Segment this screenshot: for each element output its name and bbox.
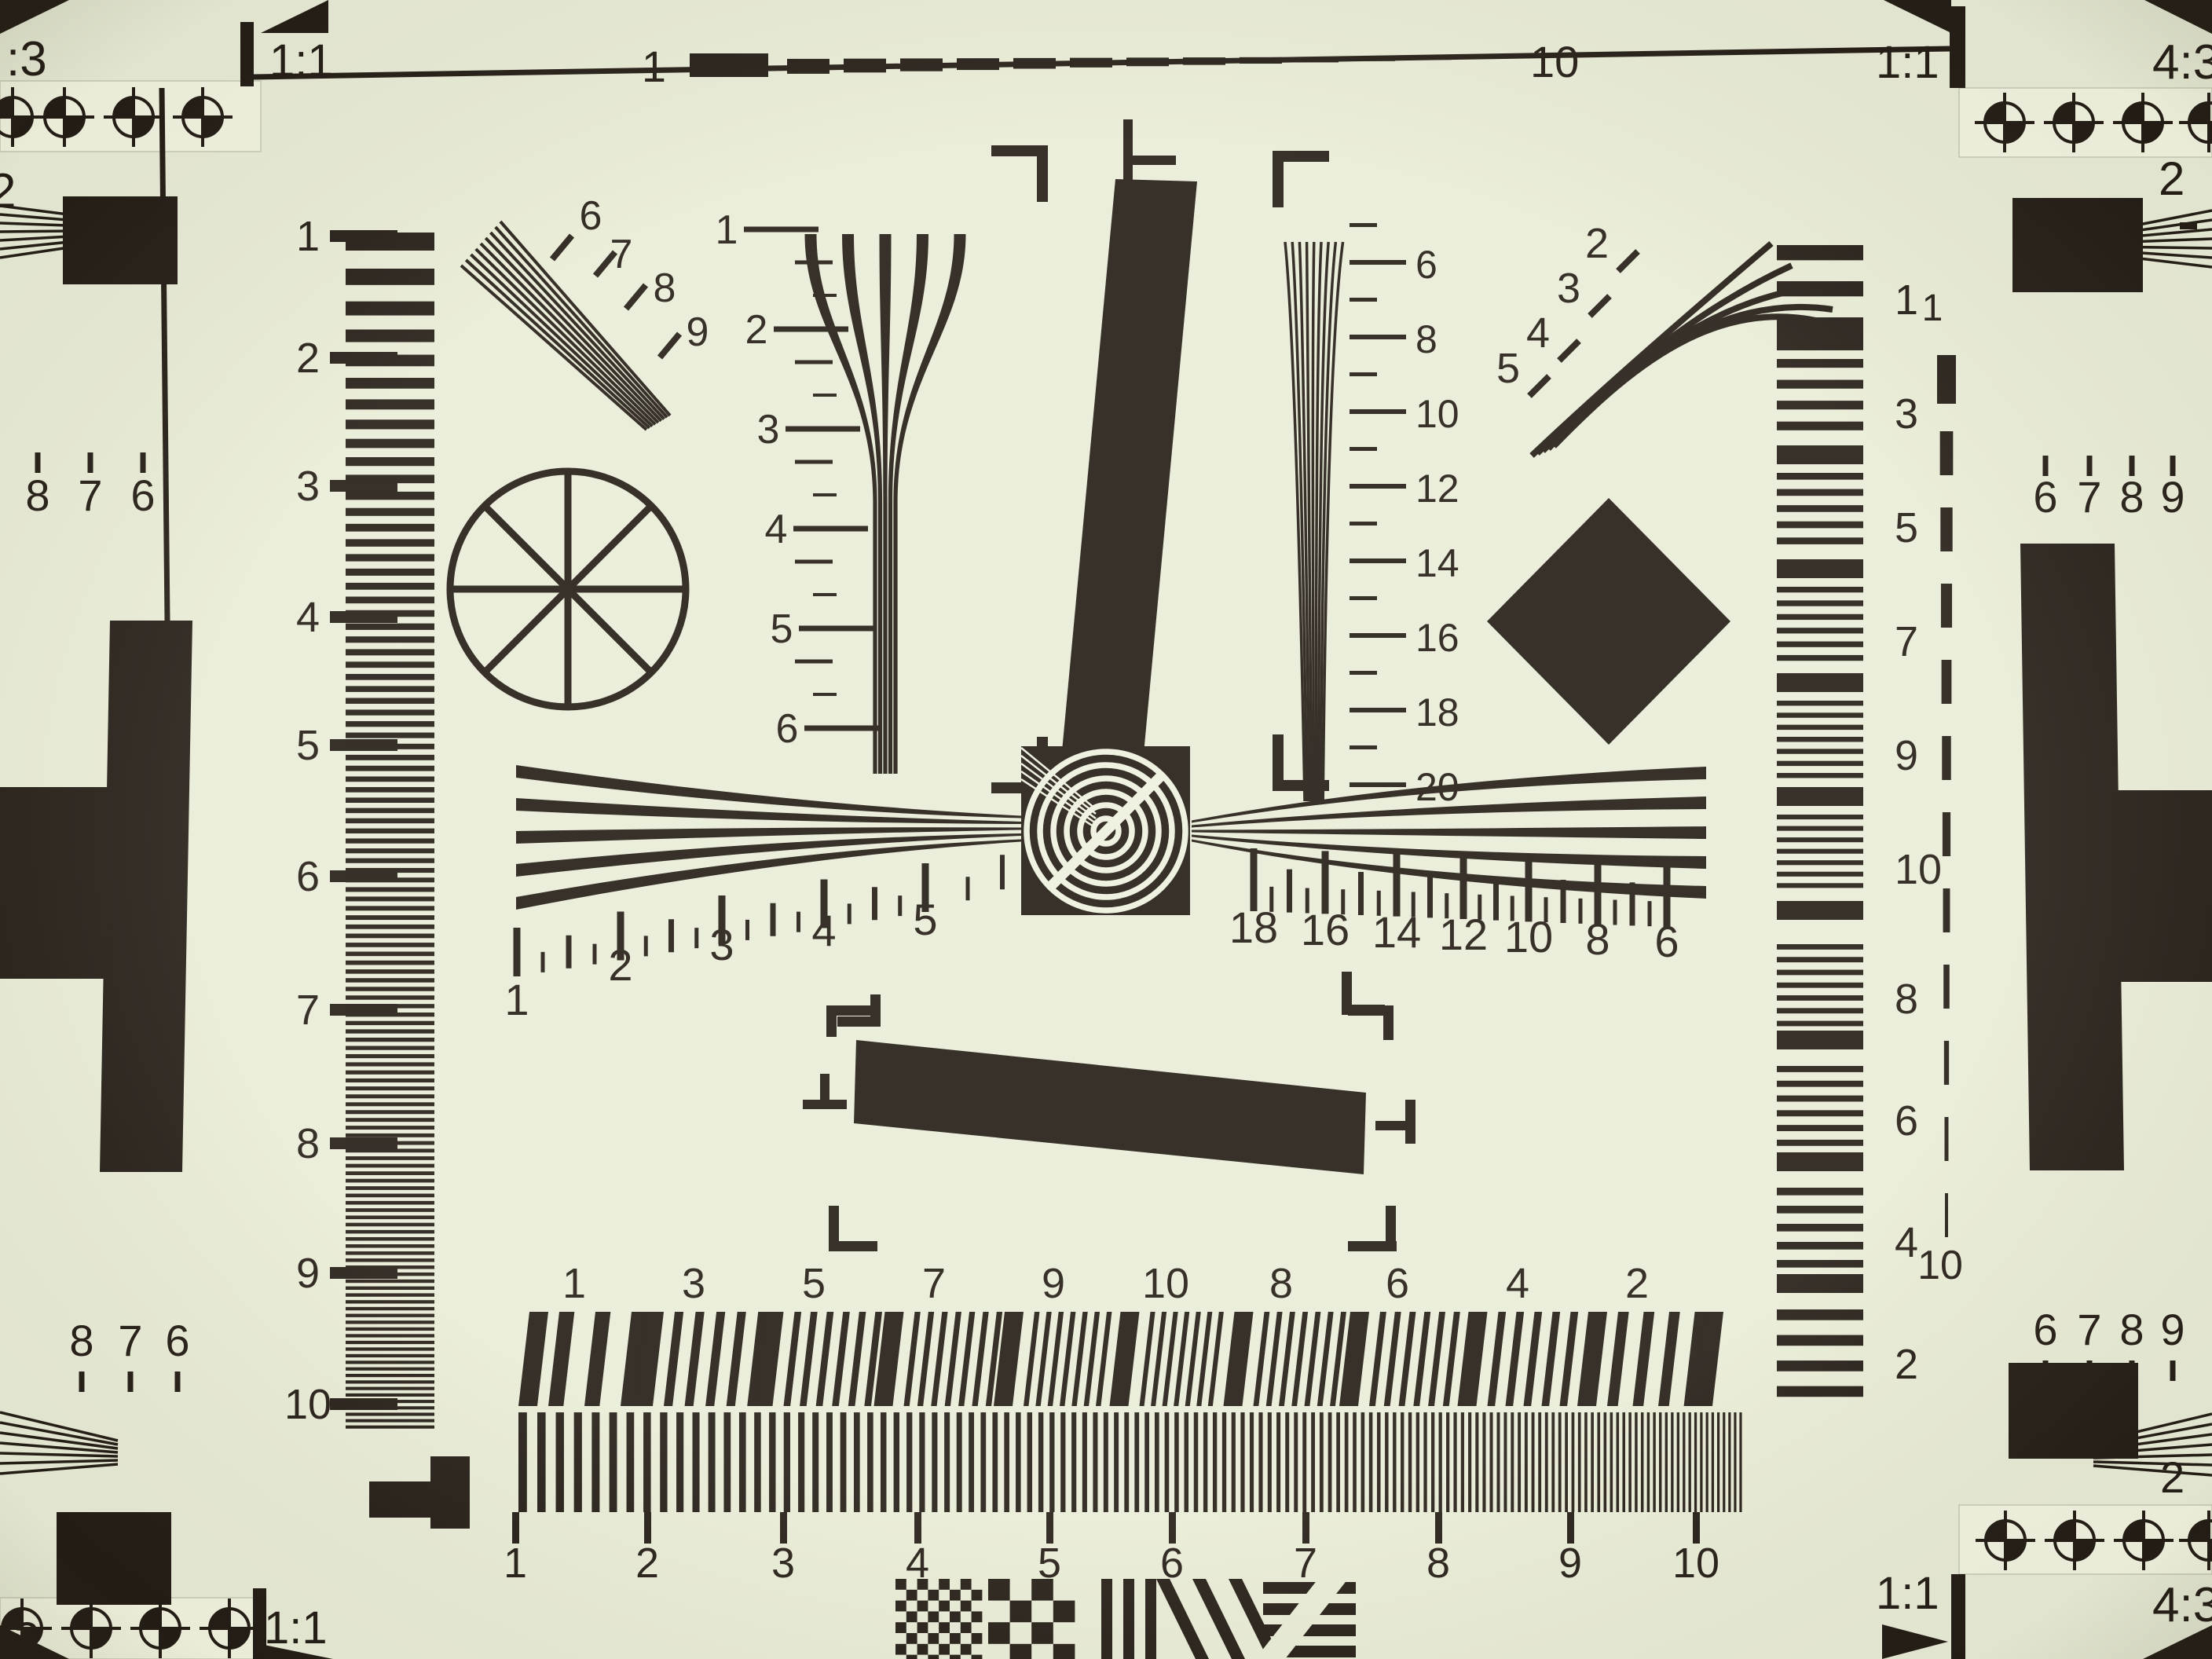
photo-vignette (0, 0, 2212, 1659)
iso12233-chart: :3 1:1 1:1 4:3 :3 1:1 1:1 4:3 1 10 2 876… (0, 0, 2212, 1659)
test-chart-photo: :3 1:1 1:1 4:3 :3 1:1 1:1 4:3 1 10 2 876… (0, 0, 2212, 1659)
